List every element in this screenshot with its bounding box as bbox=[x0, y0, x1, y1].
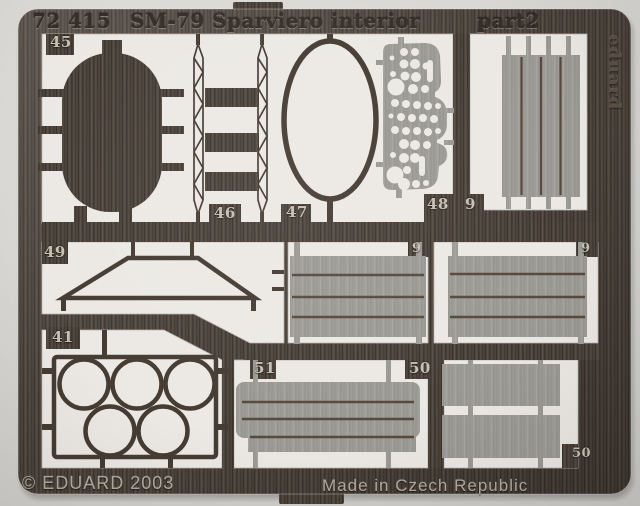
sprue-tab bbox=[131, 242, 135, 259]
photoetch-fret-photo: 72 415 SM-79 Sparviero interior part2 ed… bbox=[0, 0, 640, 506]
sprue-tab bbox=[159, 126, 184, 134]
part-9-plank-panel-mid-right bbox=[448, 242, 587, 344]
part-51-step bbox=[248, 436, 416, 452]
part-46-rung bbox=[205, 133, 259, 152]
part-label-41: 41 bbox=[52, 330, 74, 345]
part-9-plank-panel-mid-left bbox=[290, 242, 426, 344]
sprue-tab bbox=[386, 360, 391, 384]
sprue-tab bbox=[526, 36, 531, 56]
sprue-tab bbox=[452, 336, 458, 344]
sprue-tab bbox=[196, 212, 200, 223]
part-50-body bbox=[442, 364, 560, 406]
sprue-tab bbox=[538, 457, 543, 468]
sprue-tab bbox=[102, 330, 107, 358]
sprue-tab bbox=[260, 212, 264, 223]
part-label-47: 47 bbox=[286, 205, 308, 220]
part-label-50-corner: 50 bbox=[572, 447, 591, 460]
sprue-tab bbox=[386, 450, 391, 468]
sprue-tab bbox=[159, 163, 184, 171]
opening-bottom-left bbox=[42, 330, 222, 468]
sprue-tab bbox=[272, 270, 284, 274]
sprue-tab bbox=[294, 242, 300, 258]
sprue-tab bbox=[546, 196, 551, 209]
sprue-tab bbox=[251, 298, 256, 311]
part-label-9-mid-right: 9 bbox=[581, 242, 591, 255]
sprue-tab bbox=[444, 140, 454, 145]
part-label-48: 48 bbox=[427, 197, 449, 212]
part-suffix: part2 bbox=[477, 10, 540, 32]
sprue-tab bbox=[538, 405, 543, 416]
sprue-tab bbox=[506, 36, 511, 56]
part-label-50: 50 bbox=[409, 361, 431, 376]
sprue-tab bbox=[526, 196, 531, 209]
sprue-tab bbox=[396, 189, 402, 198]
fret-graphic bbox=[0, 0, 640, 506]
sprue-tab bbox=[416, 336, 422, 344]
sprue-tab bbox=[468, 457, 473, 468]
brand-logo-text: eduard bbox=[594, 35, 624, 137]
sprue-tab bbox=[61, 298, 66, 311]
sprue-tab bbox=[506, 196, 511, 209]
part-label-46: 46 bbox=[214, 206, 236, 221]
part-label-51: 51 bbox=[254, 361, 276, 376]
sprue-tab bbox=[159, 89, 184, 97]
sprue-tab bbox=[38, 126, 65, 134]
sprue-tab bbox=[119, 206, 132, 230]
copyright-text: © EDUARD 2003 bbox=[22, 473, 174, 494]
sprue-tab bbox=[38, 89, 65, 97]
sprue-tab bbox=[546, 36, 551, 56]
sprue-tab bbox=[38, 163, 65, 171]
sprue-tab bbox=[190, 242, 194, 259]
sprue-tab bbox=[327, 34, 333, 43]
product-title: SM-79 Sparviero interior bbox=[130, 10, 420, 32]
part-46-rung bbox=[205, 172, 259, 191]
part-label-9-mid-left: 9 bbox=[412, 242, 422, 255]
part-9-plank-panel-vertical bbox=[502, 36, 580, 209]
part-45-body bbox=[62, 53, 162, 212]
sprue-tab bbox=[74, 206, 87, 230]
part-label-45: 45 bbox=[50, 35, 72, 50]
sprue-tab bbox=[578, 336, 584, 344]
made-in-text: Made in Czech Republic bbox=[322, 476, 528, 496]
sprue-tab bbox=[260, 34, 264, 45]
part-50-body bbox=[442, 415, 560, 458]
part-51-body bbox=[236, 382, 420, 438]
part-46-rung bbox=[205, 88, 259, 107]
sprue-tab bbox=[272, 287, 284, 291]
sprue-tab bbox=[327, 197, 333, 223]
part-label-49: 49 bbox=[44, 245, 66, 260]
divider-horizontal-2 bbox=[244, 344, 600, 360]
catalog-number: 72 415 bbox=[32, 10, 111, 32]
part-label-9-top: 9 bbox=[465, 197, 476, 212]
sprue-tab bbox=[253, 450, 258, 468]
sprue-tab bbox=[566, 36, 571, 56]
sprue-tab bbox=[196, 34, 200, 45]
sprue-tab bbox=[452, 242, 458, 258]
sprue-tab bbox=[294, 336, 300, 344]
sprue-tab bbox=[468, 405, 473, 416]
sprue-tab bbox=[566, 196, 571, 209]
